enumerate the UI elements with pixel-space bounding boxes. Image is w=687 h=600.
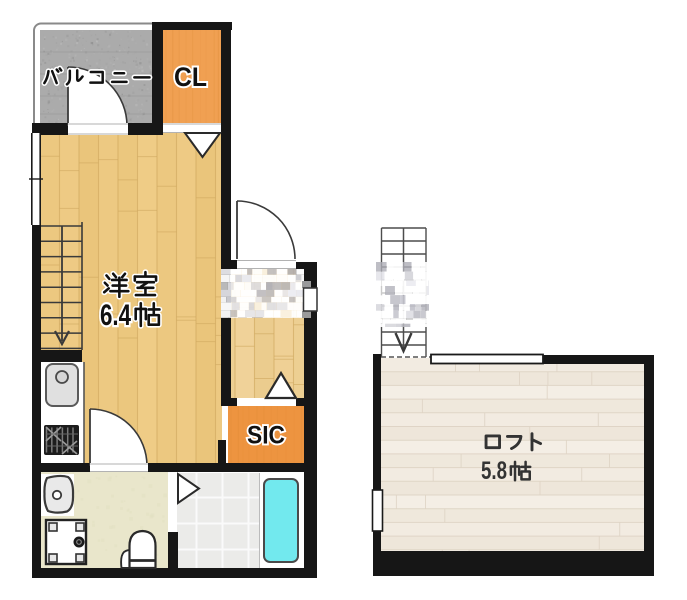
svg-text:6.4: 6.4 bbox=[100, 299, 131, 332]
svg-text:5.8: 5.8 bbox=[481, 457, 507, 485]
svg-text:CL: CL bbox=[174, 62, 207, 92]
svg-text:SIC: SIC bbox=[247, 422, 285, 450]
